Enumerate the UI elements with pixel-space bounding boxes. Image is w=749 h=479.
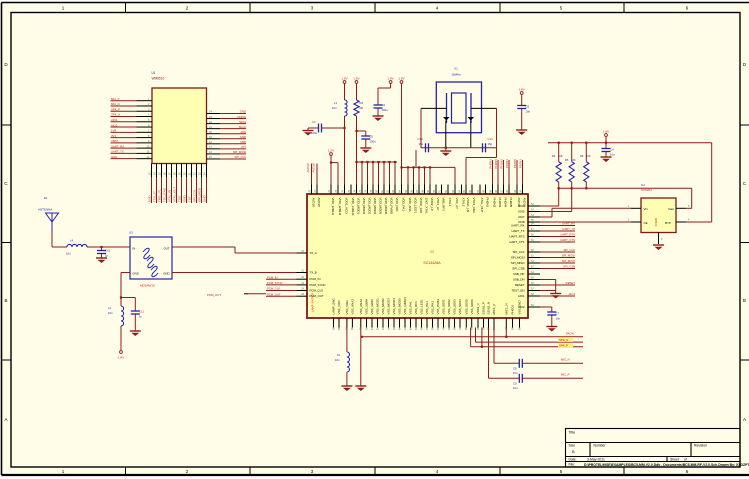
svg-text:IN: IN — [133, 247, 136, 251]
svg-text:PCM_IN: PCM_IN — [267, 275, 278, 279]
svg-text:MDSAW10: MDSAW10 — [140, 284, 155, 288]
svg-text:SPI_MISO: SPI_MISO — [511, 261, 525, 265]
svg-text:C11: C11 — [139, 310, 144, 314]
svg-text:SPI_MOSI: SPI_MOSI — [562, 254, 575, 258]
svg-text:A: A — [743, 417, 746, 422]
svg-text:C9: C9 — [513, 382, 517, 386]
svg-text:PCM_OUT: PCM_OUT — [267, 292, 281, 296]
svg-text:100n: 100n — [370, 140, 377, 144]
svg-text:SDIO: SDIO — [239, 120, 247, 124]
svg-text:1.8V: 1.8V — [398, 77, 404, 81]
svg-text:VSS_SD03: VSS_SD03 — [453, 299, 457, 315]
svg-text:SPI_CLK: SPI_CLK — [234, 155, 246, 159]
svg-text:SPI_MOSI: SPI_MOSI — [233, 150, 246, 154]
svg-text:of: of — [684, 457, 687, 461]
svg-text:B: B — [4, 298, 7, 303]
svg-text:XC6204: XC6204 — [641, 188, 652, 192]
svg-text:S2562_P: S2562_P — [482, 302, 486, 314]
svg-text:C12: C12 — [418, 137, 424, 141]
svg-text:U1: U1 — [152, 71, 156, 75]
svg-text:SPI_MOSI: SPI_MOSI — [511, 256, 525, 260]
svg-text:AIO1: AIO1 — [518, 294, 525, 298]
svg-text:PH0N1: PH0N1 — [486, 198, 490, 208]
svg-text:10K: 10K — [558, 154, 563, 158]
svg-text:VDD_LED1: VDD_LED1 — [414, 198, 418, 214]
svg-text:VSS_SD02: VSS_SD02 — [447, 299, 451, 315]
svg-text:AVD18: AVD18 — [317, 198, 321, 208]
svg-text:AIO1: AIO1 — [569, 292, 576, 296]
svg-text:XTAL_IN: XTAL_IN — [167, 190, 171, 202]
svg-text:100: 100 — [495, 189, 498, 194]
svg-text:VSS_PH2: VSS_PH2 — [431, 301, 435, 315]
svg-text:TST: TST — [187, 196, 191, 202]
svg-text:GND: GND — [133, 272, 139, 276]
svg-text:GND: GND — [240, 135, 246, 139]
svg-text:VSS_SD05: VSS_SD05 — [464, 299, 468, 315]
svg-text:R4: R4 — [552, 154, 556, 158]
svg-text:VSS3_ANA: VSS3_ANA — [472, 198, 476, 214]
svg-text:PCM_OUT: PCM_OUT — [310, 294, 324, 298]
svg-text:ATAL_OUT: ATAL_OUT — [480, 198, 484, 213]
svg-text:UART_RX: UART_RX — [511, 224, 525, 228]
svg-text:SPK_P: SPK_P — [111, 107, 120, 111]
svg-text:VDD_MOD5: VDD_MOD5 — [379, 198, 383, 215]
svg-text:XTAL2: XTAL2 — [462, 198, 466, 207]
svg-text:GND: GND — [111, 155, 117, 159]
svg-text:TDI_JTAG: TDI_JTAG — [162, 187, 166, 202]
svg-text:SPK_N: SPK_N — [111, 113, 120, 117]
svg-text:3-May-2011: 3-May-2011 — [587, 457, 605, 461]
svg-text:SPI_CSB: SPI_CSB — [512, 267, 524, 271]
svg-text:VSS_PHB1: VSS_PHB1 — [436, 299, 440, 315]
svg-text:Sheet: Sheet — [670, 457, 679, 461]
svg-text:GND: GND — [240, 110, 246, 114]
svg-text:TEST_EN: TEST_EN — [511, 289, 524, 293]
svg-text:103: 103 — [514, 189, 517, 194]
svg-text:AIO2: AIO2 — [111, 123, 118, 127]
svg-text:R5: R5 — [565, 158, 569, 162]
svg-text:P10N1: P10N1 — [518, 159, 522, 169]
svg-text:VSS_SD01: VSS_SD01 — [442, 299, 446, 315]
svg-text:VDD_ANA: VDD_ANA — [408, 198, 412, 212]
svg-text:E1: E1 — [44, 196, 48, 200]
svg-text:VSS_VID1: VSS_VID1 — [337, 300, 341, 315]
svg-text:PH0N5: PH0N5 — [509, 198, 513, 208]
svg-text:VSS_RF1: VSS_RF1 — [414, 301, 418, 315]
svg-text:10n: 10n — [513, 371, 518, 375]
svg-text:SCLK: SCLK — [239, 125, 246, 129]
svg-text:SPI_CSB: SPI_CSB — [563, 265, 575, 269]
svg-text:VDD_13MHX: VDD_13MHX — [351, 198, 355, 216]
svg-text:UART_RTS: UART_RTS — [560, 233, 575, 237]
svg-text:VSS_SD06: VSS_SD06 — [470, 299, 474, 315]
svg-text:10n: 10n — [610, 153, 615, 157]
svg-text:TMS_JTL: TMS_JTL — [157, 189, 161, 202]
svg-text:X1: X1 — [454, 67, 458, 71]
svg-text:VSS_MOD1: VSS_MOD1 — [376, 298, 380, 315]
svg-text:VSS_MOD2: VSS_MOD2 — [381, 298, 385, 315]
svg-text:UART_CTS: UART_CTS — [509, 240, 524, 244]
svg-text:PH0N1: PH0N1 — [488, 159, 492, 169]
svg-text:VSS1_LP: VSS1_LP — [436, 198, 440, 211]
svg-text:1.8V: 1.8V — [603, 130, 609, 134]
svg-text:XTAL1: XTAL1 — [448, 198, 452, 207]
svg-text:10n: 10n — [66, 252, 71, 256]
svg-text:10n: 10n — [335, 358, 340, 362]
svg-text:VSS_VID2: VSS_VID2 — [345, 300, 349, 315]
svg-text:1p: 1p — [105, 254, 109, 258]
svg-text:Size: Size — [569, 444, 576, 448]
svg-text:ANTENNA: ANTENNA — [38, 208, 52, 212]
svg-text:102: 102 — [506, 189, 509, 194]
svg-text:VDD2_LP: VDD2_LP — [430, 198, 434, 211]
svg-text:Vout: Vout — [668, 207, 674, 211]
svg-text:L6: L6 — [337, 353, 341, 357]
svg-text:15p: 15p — [488, 142, 493, 146]
svg-text:SC14428A: SC14428A — [423, 261, 441, 265]
svg-text:MIC1_N: MIC1_N — [504, 303, 508, 314]
svg-text:PH1N5: PH1N5 — [499, 159, 503, 169]
svg-text:B: B — [743, 298, 746, 303]
svg-text:TDO: TDO — [177, 195, 181, 202]
svg-text:AD0: AD0 — [241, 130, 247, 134]
svg-text:R2: R2 — [360, 101, 364, 105]
svg-text:L4: L4 — [70, 239, 74, 243]
svg-text:C3: C3 — [312, 120, 316, 124]
svg-text:U3: U3 — [129, 231, 133, 235]
svg-text:USB_DN: USB_DN — [513, 278, 525, 282]
svg-text:VSS_PH1: VSS_PH1 — [425, 301, 429, 315]
svg-text:PH0N2: PH0N2 — [493, 198, 497, 208]
svg-text:32KT_XTAL: 32KT_XTAL — [425, 198, 429, 214]
svg-text:AVD18: AVD18 — [312, 198, 316, 208]
svg-text:VDD_MOD1: VDD_MOD1 — [357, 198, 361, 215]
svg-text:PH0D1: PH0D1 — [511, 304, 515, 314]
svg-text:101: 101 — [500, 189, 503, 194]
svg-text:VSS_MOD3: VSS_MOD3 — [387, 298, 391, 315]
svg-text:D:\PROTEL99SE\EXAMPLES\BC5-MM-: D:\PROTEL99SE\EXAMPLES\BC5-MM-V2.0.Ddb -… — [584, 463, 749, 467]
svg-text:VDD_PVMD: VDD_PVMD — [390, 198, 394, 216]
svg-text:GND: GND — [163, 272, 169, 276]
svg-text:VDD_MOD4: VDD_MOD4 — [373, 198, 377, 215]
svg-text:MIC_P: MIC_P — [561, 373, 570, 377]
svg-text:10n: 10n — [556, 317, 561, 321]
svg-text:VDD: VDD — [240, 140, 246, 144]
svg-text:VBB_RF3: VBB_RF3 — [442, 198, 446, 212]
svg-text:Title: Title — [569, 431, 576, 435]
svg-text:PH0N4: PH0N4 — [504, 198, 508, 208]
svg-text:PH0N3: PH0N3 — [498, 198, 502, 208]
svg-text:PCM_CLK: PCM_CLK — [310, 289, 324, 293]
svg-text:IO04: IO04 — [518, 204, 525, 208]
svg-text:INT: INT — [241, 145, 246, 149]
svg-text:SPK_P: SPK_P — [559, 344, 568, 348]
svg-text:VSS_32MV: VSS_32MV — [370, 299, 374, 315]
svg-text:VDD_MOD6: VDD_MOD6 — [384, 198, 388, 215]
svg-text:XC6204: XC6204 — [655, 217, 658, 226]
svg-text:VDD1_VCO: VDD1_VCO — [345, 198, 349, 215]
svg-text:UART_TX: UART_TX — [511, 229, 524, 233]
svg-text:AVD18: AVD18 — [312, 163, 316, 173]
svg-text:C8: C8 — [513, 367, 517, 371]
svg-text:C5: C5 — [370, 135, 374, 139]
svg-text:C13: C13 — [488, 137, 494, 141]
svg-text:C6: C6 — [526, 105, 530, 109]
svg-text:VSS_LED1: VSS_LED1 — [420, 299, 424, 315]
svg-text:Revision: Revision — [694, 444, 707, 448]
svg-text:File:: File: — [569, 463, 575, 467]
svg-text:3V3: 3V3 — [111, 134, 116, 138]
svg-text:100n: 100n — [311, 131, 318, 135]
svg-text:MIC_P: MIC_P — [111, 97, 120, 101]
svg-text:L1: L1 — [334, 101, 338, 105]
svg-text:A: A — [4, 417, 7, 422]
svg-text:PCM_SYNC: PCM_SYNC — [267, 281, 283, 285]
svg-text:PH0N5: PH0N5 — [494, 159, 498, 169]
svg-text:VDD33: VDD33 — [237, 115, 246, 119]
svg-text:GND: GND — [147, 195, 151, 203]
svg-text:1.8V: 1.8V — [388, 77, 394, 81]
svg-text:C2: C2 — [382, 103, 386, 107]
svg-text:Date:: Date: — [569, 457, 577, 461]
svg-text:VBAT: VBAT — [111, 139, 118, 143]
svg-text:VDDC_32K: VDDC_32K — [419, 198, 423, 214]
svg-text:XTAL_OUT: XTAL_OUT — [172, 187, 176, 202]
svg-text:VSS_XT: VSS_XT — [455, 198, 459, 210]
svg-text:16MHz: 16MHz — [451, 73, 461, 77]
svg-text:10n: 10n — [526, 110, 531, 114]
svg-text:10n: 10n — [108, 311, 113, 315]
svg-text:PCM_OUT: PCM_OUT — [207, 293, 221, 297]
svg-text:1.2V: 1.2V — [328, 149, 334, 153]
svg-text:OUT: OUT — [164, 247, 170, 251]
svg-text:UART_TX: UART_TX — [562, 227, 575, 231]
svg-text:CE: CE — [644, 221, 648, 225]
svg-text:SPK_N: SPK_N — [559, 338, 568, 342]
svg-text:UART_CTS: UART_CTS — [560, 238, 575, 242]
svg-text:SPI_CLK: SPI_CLK — [513, 250, 525, 254]
svg-text:SPI_CLK: SPI_CLK — [192, 190, 196, 202]
svg-text:VSS3_X: VSS3_X — [476, 303, 480, 314]
svg-text:1.8V: 1.8V — [353, 77, 359, 81]
svg-text:C4: C4 — [610, 148, 614, 152]
svg-text:1n: 1n — [139, 315, 143, 319]
svg-text:VDD_PA1: VDD_PA1 — [402, 198, 406, 212]
svg-text:104: 104 — [519, 189, 522, 194]
svg-text:PAON: PAON — [566, 331, 574, 335]
svg-text:C16: C16 — [105, 249, 111, 253]
svg-text:IO07: IO07 — [518, 215, 525, 219]
svg-text:UART_RTS: UART_RTS — [509, 235, 524, 239]
svg-text:U4: U4 — [641, 183, 645, 187]
svg-text:VDD_PAD: VDD_PAD — [395, 198, 399, 213]
svg-text:VSS_MOD5: VSS_MOD5 — [398, 298, 402, 315]
svg-text:C7: C7 — [556, 312, 560, 316]
svg-text:1.8V: 1.8V — [519, 88, 525, 92]
svg-text:10K: 10K — [571, 158, 576, 162]
svg-text:VSS_SD04: VSS_SD04 — [458, 299, 462, 315]
svg-text:GND: GND — [182, 195, 186, 203]
svg-text:TCK_JT: TCK_JT — [152, 191, 156, 202]
svg-text:UART_TX: UART_TX — [111, 150, 124, 154]
svg-text:100n: 100n — [382, 108, 389, 112]
svg-text:10n: 10n — [513, 386, 518, 390]
svg-text:RESET: RESET — [515, 283, 525, 287]
svg-text:SPI_CLK: SPI_CLK — [563, 248, 575, 252]
svg-text:UART_RX: UART_RX — [562, 222, 575, 226]
svg-text:AIO2: AIO2 — [518, 305, 525, 309]
svg-text:PCM_IN: PCM_IN — [310, 277, 321, 281]
svg-text:RESET: RESET — [566, 281, 576, 285]
svg-text:AVD18: AVD18 — [306, 163, 310, 173]
svg-text:LAMP_SW1: LAMP_SW1 — [332, 298, 336, 315]
svg-text:PCM_SYNC: PCM_SYNC — [310, 283, 326, 287]
svg-text:USB_DP: USB_DP — [513, 272, 525, 276]
svg-text:R6: R6 — [580, 154, 584, 158]
svg-text:1.8V: 1.8V — [341, 77, 347, 81]
svg-text:VSS_MOD4: VSS_MOD4 — [392, 298, 396, 315]
svg-text:Vin: Vin — [644, 207, 649, 211]
svg-text:Number: Number — [594, 444, 607, 448]
svg-text:MIC_N: MIC_N — [561, 358, 570, 362]
svg-text:GND: GND — [202, 195, 206, 203]
svg-text:MIC1_P: MIC1_P — [492, 304, 496, 315]
svg-text:VDD_MOD2: VDD_MOD2 — [362, 198, 366, 215]
svg-text:P10N1: P10N1 — [505, 159, 509, 169]
svg-text:TX_A: TX_A — [310, 251, 317, 255]
svg-text:IO05: IO05 — [518, 210, 525, 214]
svg-text:MIC_N: MIC_N — [111, 102, 120, 106]
svg-text:15p: 15p — [419, 142, 424, 146]
svg-text:VSS_32MH: VSS_32MH — [365, 299, 369, 315]
svg-text:SPI_MOSI: SPI_MOSI — [197, 188, 201, 202]
svg-text:VSS_PA1: VSS_PA1 — [409, 301, 413, 314]
svg-text:VDD_32MH2: VDD_32MH2 — [338, 198, 342, 216]
svg-text:L2: L2 — [108, 306, 112, 310]
svg-text:TX_B: TX_B — [310, 271, 317, 275]
svg-text:PCM_CLK: PCM_CLK — [267, 287, 280, 291]
svg-text:VDD_MOD3: VDD_MOD3 — [368, 198, 372, 215]
svg-text:1V8: 1V8 — [111, 129, 116, 133]
svg-text:U2: U2 — [430, 250, 434, 254]
svg-text:10n: 10n — [332, 106, 337, 110]
svg-text:VSS_13MHX: VSS_13MHX — [403, 297, 407, 315]
svg-text:VSS31_LN: VSS31_LN — [466, 198, 470, 213]
svg-text:VDD_32MH1: VDD_32MH1 — [331, 198, 335, 216]
svg-text:VSS_ANA1: VSS_ANA1 — [351, 299, 355, 315]
svg-text:P10N5: P10N5 — [513, 159, 517, 169]
svg-text:BYP: BYP — [665, 221, 671, 225]
svg-text:SPI_MISO: SPI_MISO — [562, 259, 576, 263]
svg-text:1.8V: 1.8V — [118, 356, 124, 360]
svg-text:0R: 0R — [360, 106, 364, 110]
svg-text:AIO1: AIO1 — [111, 118, 118, 122]
svg-text:S2562_N: S2562_N — [487, 302, 491, 315]
svg-text:UART_RX: UART_RX — [111, 144, 124, 148]
svg-text:VSS_ANA2: VSS_ANA2 — [359, 299, 363, 315]
svg-text:10K: 10K — [586, 154, 591, 158]
svg-text:WM8510: WM8510 — [152, 77, 165, 81]
